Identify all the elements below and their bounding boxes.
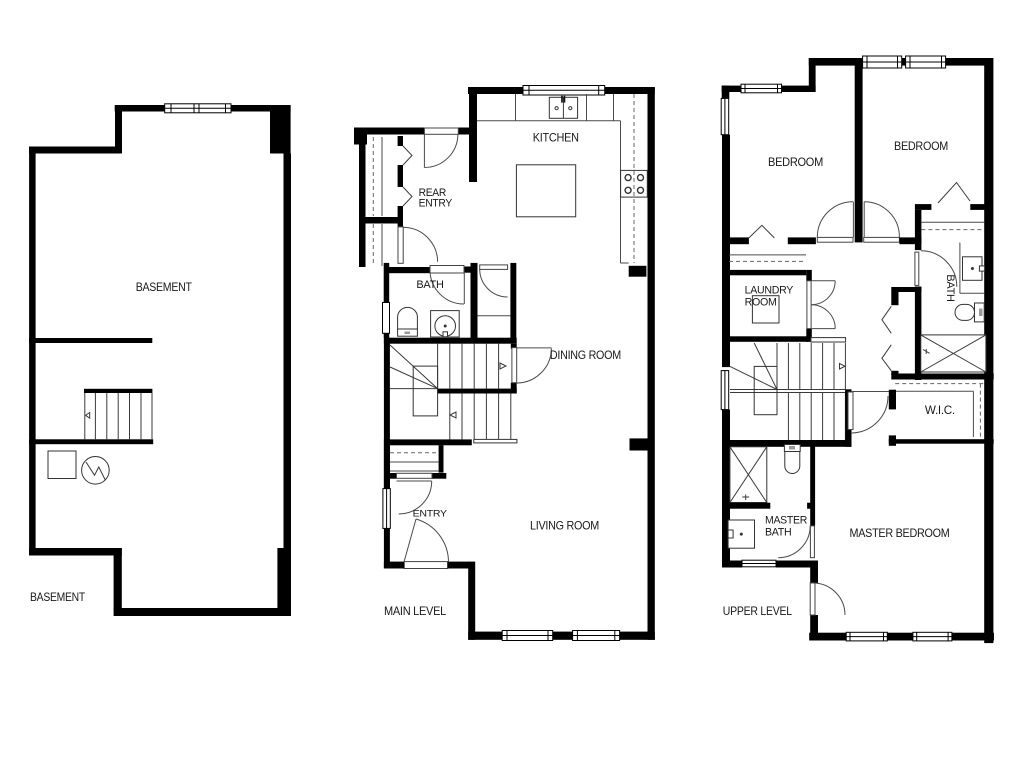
svg-text:MAIN LEVEL: MAIN LEVEL: [384, 604, 447, 618]
svg-text:UPPER LEVEL: UPPER LEVEL: [723, 604, 793, 618]
svg-text:MASTER: MASTER: [765, 514, 807, 526]
svg-text:BASEMENT: BASEMENT: [30, 590, 86, 604]
svg-text:ENTRY: ENTRY: [413, 509, 448, 520]
svg-text:BATH: BATH: [765, 527, 792, 539]
svg-text:BEDROOM: BEDROOM: [768, 155, 823, 169]
svg-text:BATH: BATH: [944, 274, 956, 302]
svg-text:LIVING ROOM: LIVING ROOM: [530, 519, 599, 533]
svg-text:MASTER BEDROOM: MASTER BEDROOM: [850, 526, 950, 540]
svg-text:KITCHEN: KITCHEN: [533, 131, 579, 145]
svg-text:ENTRY: ENTRY: [419, 198, 453, 210]
svg-text:BATH: BATH: [416, 279, 444, 291]
svg-text:DINING ROOM: DINING ROOM: [550, 348, 621, 362]
svg-text:LAUNDRY: LAUNDRY: [745, 285, 794, 297]
svg-text:W.I.C.: W.I.C.: [925, 403, 955, 417]
svg-text:BASEMENT: BASEMENT: [136, 280, 193, 294]
svg-text:BEDROOM: BEDROOM: [894, 139, 948, 153]
svg-text:ROOM: ROOM: [745, 297, 777, 309]
